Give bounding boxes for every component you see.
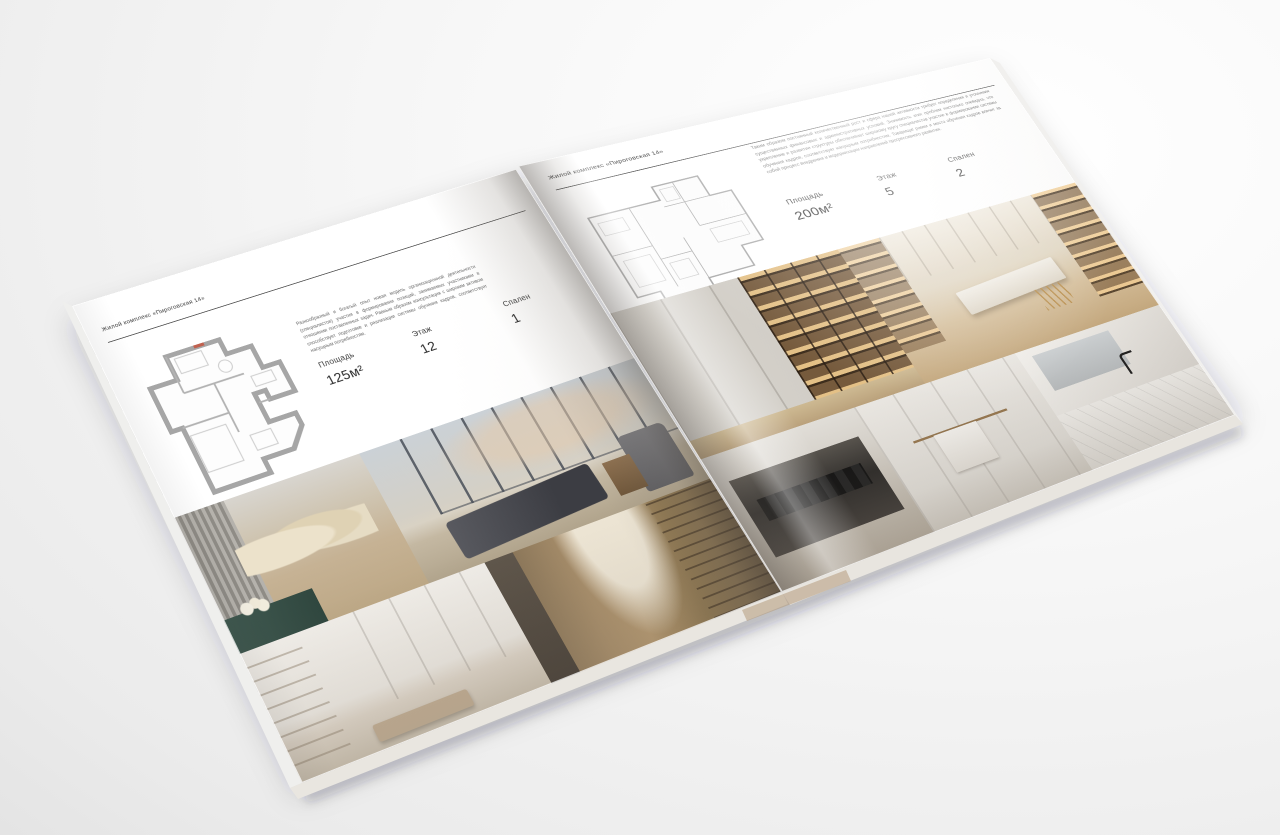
spec-bedrooms: Спален 1 (501, 293, 543, 327)
plan-outline-walls (139, 326, 328, 496)
spec-floor-label: Этаж (875, 171, 898, 183)
spec-bedrooms-value: 1 (508, 304, 543, 327)
spec-area: Площадь 125м² (317, 350, 368, 389)
apartment-description: Разнообразный и богатый опыт новая модел… (295, 264, 493, 355)
spec-floor-value: 5 (882, 182, 909, 199)
spec-floor: Этаж 5 (875, 171, 909, 199)
spec-bedrooms: Спален 2 (946, 151, 987, 180)
spec-floor: Этаж 12 (411, 325, 445, 357)
spec-area: Площадь 200м² (785, 190, 838, 223)
brochure-scene: Жилой комплекс «Пироговская 14» Разнообр… (0, 0, 1280, 835)
spec-floor-label: Этаж (411, 325, 434, 339)
spec-floor-value: 12 (417, 337, 444, 357)
spec-bedrooms-value: 2 (953, 161, 987, 180)
bed-pillows (229, 493, 382, 585)
